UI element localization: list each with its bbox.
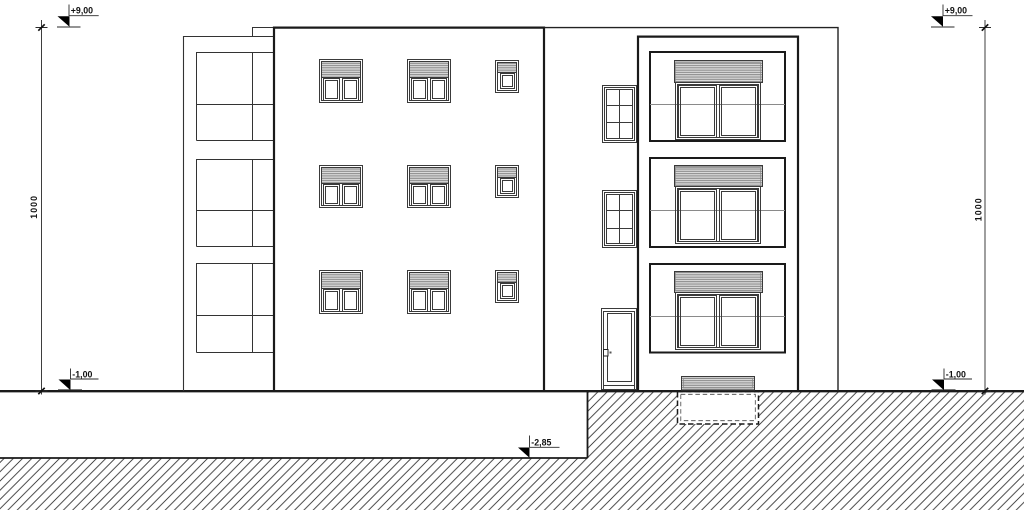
svg-text:+9,00: +9,00 xyxy=(71,6,93,16)
svg-text:-2,85: -2,85 xyxy=(531,438,551,448)
svg-text:1000: 1000 xyxy=(974,197,984,221)
svg-text:-1,00: -1,00 xyxy=(946,369,966,379)
svg-text:+9,00: +9,00 xyxy=(945,6,967,16)
svg-text:-1,00: -1,00 xyxy=(72,369,92,379)
svg-text:1000: 1000 xyxy=(29,195,39,219)
